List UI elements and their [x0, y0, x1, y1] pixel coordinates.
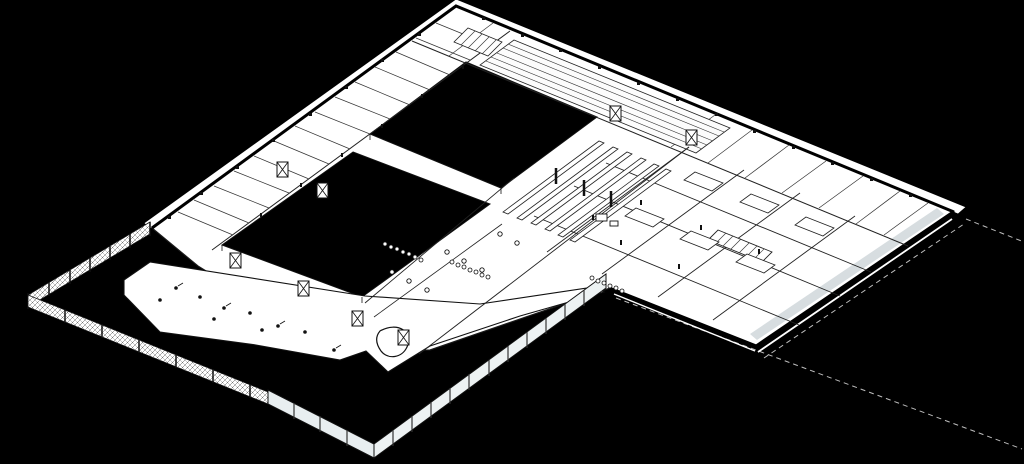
- bike-rack-dot: [407, 252, 411, 256]
- terrace-item: [276, 324, 280, 328]
- chair: [462, 259, 466, 263]
- door-mark: [462, 65, 464, 69]
- door-mark: [700, 225, 702, 230]
- bike-rack-dot: [419, 258, 423, 262]
- window-tick: [559, 49, 562, 52]
- window-tick: [792, 146, 795, 149]
- reception-chair: [610, 221, 618, 226]
- bike-rack-dot: [474, 270, 478, 274]
- bike-rack-dot: [602, 281, 606, 285]
- window-tick: [637, 82, 640, 85]
- window-tick: [521, 34, 524, 37]
- axonometric-building-drawing: [0, 0, 1024, 464]
- window-tick: [236, 166, 239, 169]
- window-tick: [345, 86, 348, 89]
- window-tick: [831, 162, 834, 165]
- bike-rack-dot: [480, 273, 484, 277]
- door-mark: [758, 249, 760, 254]
- door-mark: [341, 153, 343, 157]
- reception-desk: [596, 214, 607, 221]
- chair: [390, 270, 394, 274]
- terrace-item: [158, 298, 162, 302]
- window-tick: [909, 194, 912, 197]
- chair: [407, 279, 411, 283]
- bike-rack-dot: [486, 275, 490, 279]
- bike-rack-dot: [590, 276, 594, 280]
- bike-rack-dot: [614, 286, 618, 290]
- window-tick: [715, 113, 718, 116]
- bike-rack-dot: [468, 268, 472, 272]
- door-mark: [300, 183, 302, 187]
- bike-rack-dot: [383, 242, 387, 246]
- window-tick: [870, 178, 873, 181]
- chair: [425, 288, 429, 292]
- door-mark: [260, 213, 262, 217]
- door-mark: [678, 264, 680, 269]
- window-tick: [598, 66, 601, 69]
- door-mark: [421, 94, 423, 98]
- window-tick: [418, 33, 421, 36]
- window-tick: [168, 216, 171, 219]
- window-tick: [381, 59, 384, 62]
- window-tick: [482, 17, 485, 20]
- bike-rack-dot: [389, 245, 393, 249]
- terrace-item: [174, 286, 178, 290]
- bike-rack-dot: [596, 279, 600, 283]
- bike-rack-dot: [462, 265, 466, 269]
- terrace-item: [332, 348, 336, 352]
- terrace-item: [212, 317, 216, 321]
- chair: [515, 241, 519, 245]
- chair: [498, 232, 502, 236]
- terrace-item: [222, 306, 226, 310]
- chair: [445, 250, 449, 254]
- window-tick: [200, 192, 203, 195]
- window-tick: [309, 113, 312, 116]
- window-tick: [272, 139, 275, 142]
- door-mark: [640, 200, 642, 205]
- terrace-item: [198, 295, 202, 299]
- door-mark: [620, 240, 622, 245]
- bike-rack-dot: [620, 289, 624, 293]
- terrace-item: [248, 311, 252, 315]
- chair: [480, 268, 484, 272]
- terrace-item: [260, 328, 264, 332]
- bike-rack-dot: [456, 263, 460, 267]
- bike-rack-dot: [413, 255, 417, 259]
- window-tick: [676, 98, 679, 101]
- bike-rack-dot: [395, 247, 399, 251]
- door-mark: [381, 124, 383, 128]
- axonometric-floorplan-stage: [0, 0, 1024, 464]
- bike-rack-dot: [401, 250, 405, 254]
- window-tick: [753, 130, 756, 133]
- bike-rack-dot: [608, 284, 612, 288]
- terrace-item: [303, 330, 307, 334]
- bike-rack-dot: [450, 260, 454, 264]
- door-mark: [592, 215, 594, 220]
